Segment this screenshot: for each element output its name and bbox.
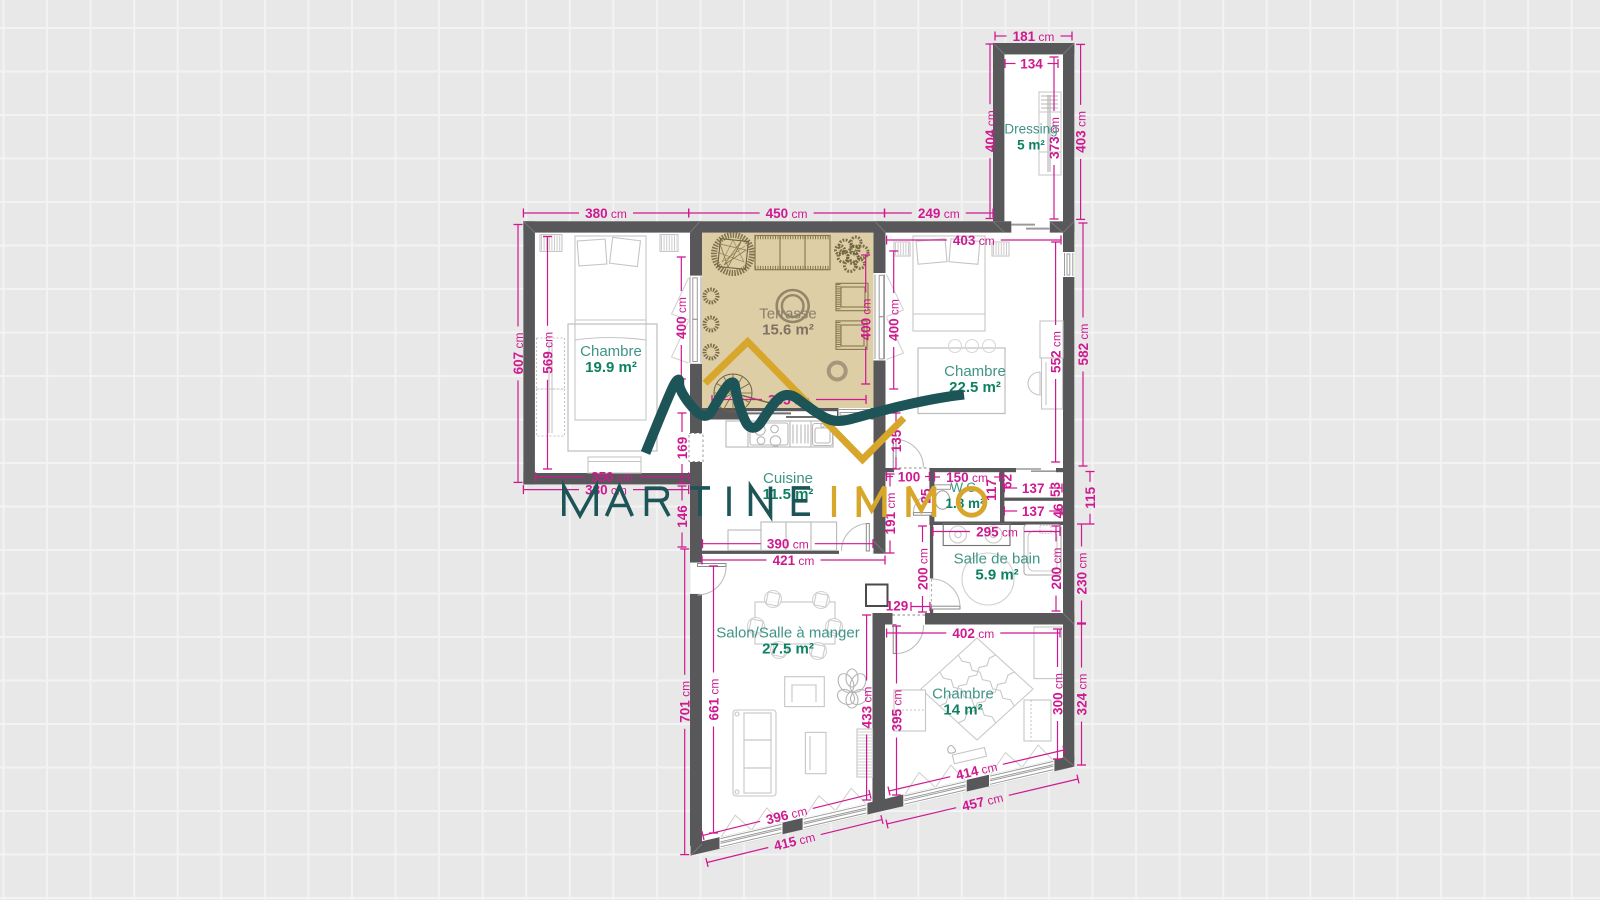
svg-text:200 cm: 200 cm [1049, 548, 1064, 590]
svg-text:Chambre: Chambre [580, 343, 642, 360]
svg-text:46: 46 [1051, 503, 1066, 519]
svg-text:5 m²: 5 m² [1017, 138, 1045, 153]
svg-text:15.6 m²: 15.6 m² [762, 322, 814, 339]
svg-text:421 cm: 421 cm [773, 553, 815, 568]
svg-text:Salle de bain: Salle de bain [954, 551, 1041, 568]
svg-text:402 cm: 402 cm [952, 626, 994, 641]
svg-text:1.8 m²: 1.8 m² [945, 496, 985, 511]
svg-text:582 cm: 582 cm [1076, 324, 1091, 366]
svg-text:230 cm: 230 cm [1074, 553, 1089, 595]
svg-text:5.9 m²: 5.9 m² [975, 567, 1018, 584]
svg-text:569 cm: 569 cm [540, 332, 555, 374]
svg-text:Chambre: Chambre [944, 363, 1006, 380]
svg-text:137: 137 [1022, 504, 1045, 519]
svg-text:Cuisine: Cuisine [763, 470, 813, 487]
svg-text:701 cm: 701 cm [678, 681, 693, 723]
svg-text:137: 137 [1022, 481, 1045, 496]
svg-text:450 cm: 450 cm [766, 206, 808, 221]
svg-text:134: 134 [1020, 56, 1043, 71]
svg-text:Terrasse: Terrasse [759, 306, 817, 323]
svg-text:Chambre: Chambre [932, 686, 994, 703]
svg-text:324 cm: 324 cm [1074, 674, 1089, 716]
svg-text:100: 100 [898, 469, 921, 484]
svg-text:146: 146 [675, 505, 690, 528]
svg-text:552 cm: 552 cm [1048, 331, 1063, 373]
svg-text:607 cm: 607 cm [511, 332, 526, 374]
svg-text:433 cm: 433 cm [859, 687, 874, 729]
svg-text:661 cm: 661 cm [706, 679, 721, 721]
svg-text:395 cm: 395 cm [889, 690, 904, 732]
svg-text:181 cm: 181 cm [1013, 29, 1055, 44]
svg-text:400 cm: 400 cm [859, 299, 874, 341]
svg-text:53: 53 [1048, 482, 1063, 498]
svg-text:19.9 m²: 19.9 m² [585, 359, 637, 376]
svg-text:115: 115 [1083, 486, 1098, 508]
svg-text:62: 62 [1000, 474, 1015, 489]
svg-text:169: 169 [675, 437, 690, 460]
svg-text:14 m²: 14 m² [943, 702, 982, 719]
svg-text:Salon/Salle à manger: Salon/Salle à manger [716, 625, 859, 642]
svg-text:403 cm: 403 cm [953, 233, 995, 248]
svg-text:200 cm: 200 cm [915, 548, 930, 590]
svg-text:295 cm: 295 cm [976, 524, 1018, 539]
svg-text:400 cm: 400 cm [887, 299, 902, 341]
svg-text:403 cm: 403 cm [1073, 111, 1088, 153]
svg-text:27.5 m²: 27.5 m² [762, 641, 814, 658]
svg-text:249 cm: 249 cm [918, 206, 960, 221]
svg-text:300 cm: 300 cm [1050, 673, 1065, 715]
svg-text:404 cm: 404 cm [983, 110, 998, 152]
svg-text:380 cm: 380 cm [585, 206, 627, 221]
svg-text:400 cm: 400 cm [674, 297, 689, 339]
svg-text:390 cm: 390 cm [767, 537, 809, 552]
svg-text:129: 129 [886, 598, 909, 613]
svg-text:Dressing: Dressing [1004, 122, 1057, 137]
